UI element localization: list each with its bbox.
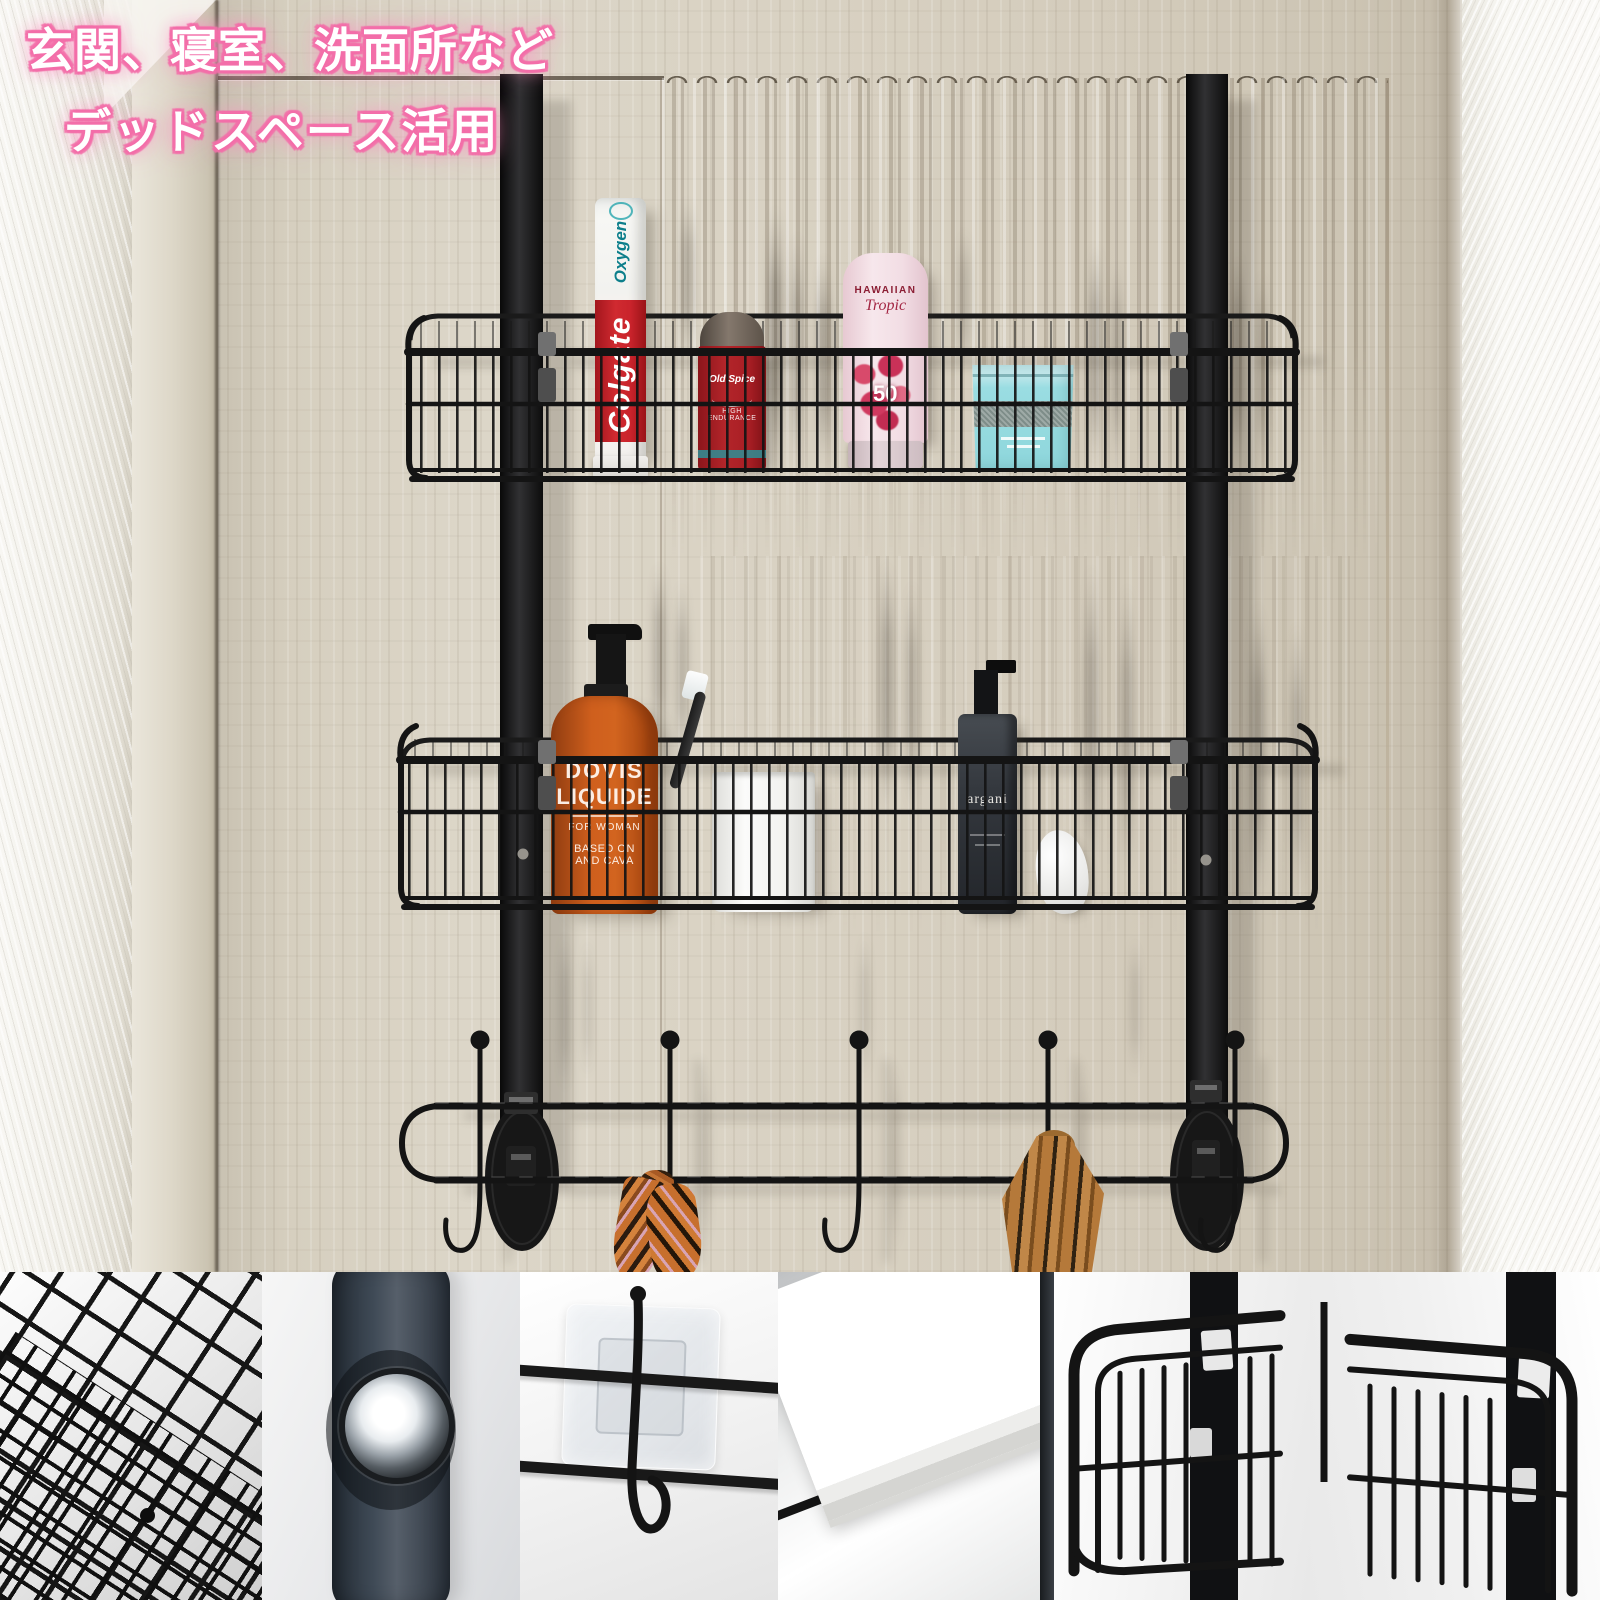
- headline-line1: 玄関、寝室、洗面所など: [26, 12, 554, 81]
- serum-pump-neck: [974, 670, 998, 716]
- serum-text-line: [975, 844, 1001, 846]
- shadow-streak: [1086, 560, 1096, 890]
- toothpaste-tube: Oxygen Colgate: [595, 198, 646, 460]
- shadow-streak: [1258, 268, 1266, 468]
- shadow-streak: [512, 1046, 518, 1261]
- towel-body: [1002, 1136, 1104, 1273]
- white-door-panel: [778, 1272, 1040, 1521]
- shadow-streak: [908, 578, 916, 816]
- shadow-streak: [1232, 248, 1243, 470]
- deodorant-body: Old Spice HIGH ENDURANCE: [698, 346, 766, 470]
- shadow-streak: [585, 934, 590, 1082]
- deodorant-stripe: [698, 450, 766, 458]
- deodorant-stick: Old Spice HIGH ENDURANCE: [698, 312, 766, 470]
- deodorant-swoosh: [712, 392, 752, 407]
- shadow-streak: [1132, 932, 1138, 1080]
- headline-line2: デッドスペース活用: [64, 93, 554, 162]
- soap-label-rule: [571, 815, 637, 817]
- shadow-streak: [793, 228, 801, 473]
- mesh-knob: [140, 1508, 155, 1523]
- soap-bottle-body: DOVIS LIQUIDE FOR WOMAN BASED ON AND CAV…: [551, 696, 658, 914]
- product-photo-over-door-rack: Oxygen Colgate Old Spice HIGH ENDURANCE …: [0, 0, 1600, 1600]
- soap-label: DOVIS LIQUIDE FOR WOMAN BASED ON AND CAV…: [551, 758, 658, 867]
- shadow-streak: [562, 928, 568, 1096]
- shadow-streak: [770, 205, 781, 470]
- hook-closeup: [520, 1272, 778, 1600]
- right-wall: [1462, 0, 1600, 1272]
- lotion-body: HAWAIIAN Tropic 50: [843, 253, 928, 443]
- serum-bottle-body: argani: [958, 714, 1017, 914]
- soap-label-line4: BASED ON: [551, 843, 658, 855]
- basket-corner-drawing: [1310, 1272, 1600, 1600]
- shadow-streak: [882, 556, 892, 814]
- soap-label-line5: AND CAVA: [551, 855, 658, 867]
- door-gap-line: [215, 0, 219, 1272]
- shadow-streak: [1113, 258, 1121, 466]
- deodorant-brand-label: Old Spice: [698, 374, 766, 386]
- door-frame-casing: [132, 0, 218, 1272]
- jar-lid-line: [968, 374, 1078, 377]
- hanging-towel: [1002, 1136, 1104, 1273]
- shadow-streak: [683, 195, 692, 360]
- white-cup: [712, 772, 815, 912]
- deodorant-line-label: HIGH ENDURANCE: [698, 408, 766, 422]
- thumbnail-wire-mesh-closeup: [0, 1272, 262, 1600]
- door-right-edge: [1430, 0, 1462, 1272]
- toothpaste-variant-label: Oxygen: [611, 198, 631, 306]
- shadow-streak: [892, 1056, 898, 1256]
- jar-text-line: [1007, 445, 1040, 448]
- lotion-spf-label: 50: [873, 381, 897, 407]
- headline: 玄関、寝室、洗面所など デッドスペース活用: [26, 12, 554, 162]
- lotion-tube: HAWAIIAN Tropic 50: [843, 253, 928, 468]
- serum-pump-bottle: argani: [958, 658, 1017, 914]
- basket-corner-drawing: [1040, 1272, 1310, 1600]
- lotion-brand-label: HAWAIIAN: [843, 285, 928, 296]
- shadow-streak: [1292, 618, 1302, 898]
- thumbnail-basket-corner-left: [1040, 1272, 1310, 1600]
- toothpaste-cap: [593, 456, 648, 478]
- lotion-script-label: Tropic: [843, 297, 928, 315]
- shadow-streak: [862, 928, 867, 1086]
- lotion-cap: [848, 441, 923, 468]
- soap-label-line2: LIQUIDE: [551, 784, 658, 810]
- door-panel-line-right: [1386, 78, 1389, 1272]
- shadow-streak: [1122, 580, 1132, 880]
- cosmetic-jar: [968, 365, 1078, 468]
- left-wall: [0, 0, 132, 1272]
- shadow-streak: [1090, 238, 1100, 468]
- toothpaste-brand-label: Colgate: [604, 298, 638, 453]
- serum-text-line: [970, 834, 1005, 836]
- thumbnail-door-panel-edge: [778, 1272, 1040, 1600]
- adhesive-tab: [1512, 1468, 1536, 1502]
- soap-label-line1: DOVIS: [551, 758, 658, 784]
- hanging-scarf: [600, 1178, 718, 1273]
- adhesive-tab: [1190, 1428, 1212, 1458]
- shadow-streak: [1252, 598, 1264, 898]
- jar-label-band: [968, 401, 1078, 427]
- soap-pump-bottle: DOVIS LIQUIDE FOR WOMAN BASED ON AND CAV…: [551, 622, 658, 914]
- thumbnail-adhesive-hook: [520, 1272, 778, 1600]
- deodorant-cap: [700, 312, 764, 348]
- thumbnail-basket-corner-right: [1310, 1272, 1600, 1600]
- detail-thumbnail-strip: [0, 1272, 1600, 1600]
- shadow-streak: [960, 225, 968, 375]
- soap-label-line3: FOR WOMAN: [551, 822, 658, 833]
- serum-brand-label: argani: [958, 792, 1017, 808]
- thumbnail-strap-chrome-rivet: [262, 1272, 520, 1600]
- chrome-rivet: [339, 1368, 455, 1484]
- shadow-streak: [818, 252, 830, 467]
- jar-text-line: [1001, 437, 1045, 440]
